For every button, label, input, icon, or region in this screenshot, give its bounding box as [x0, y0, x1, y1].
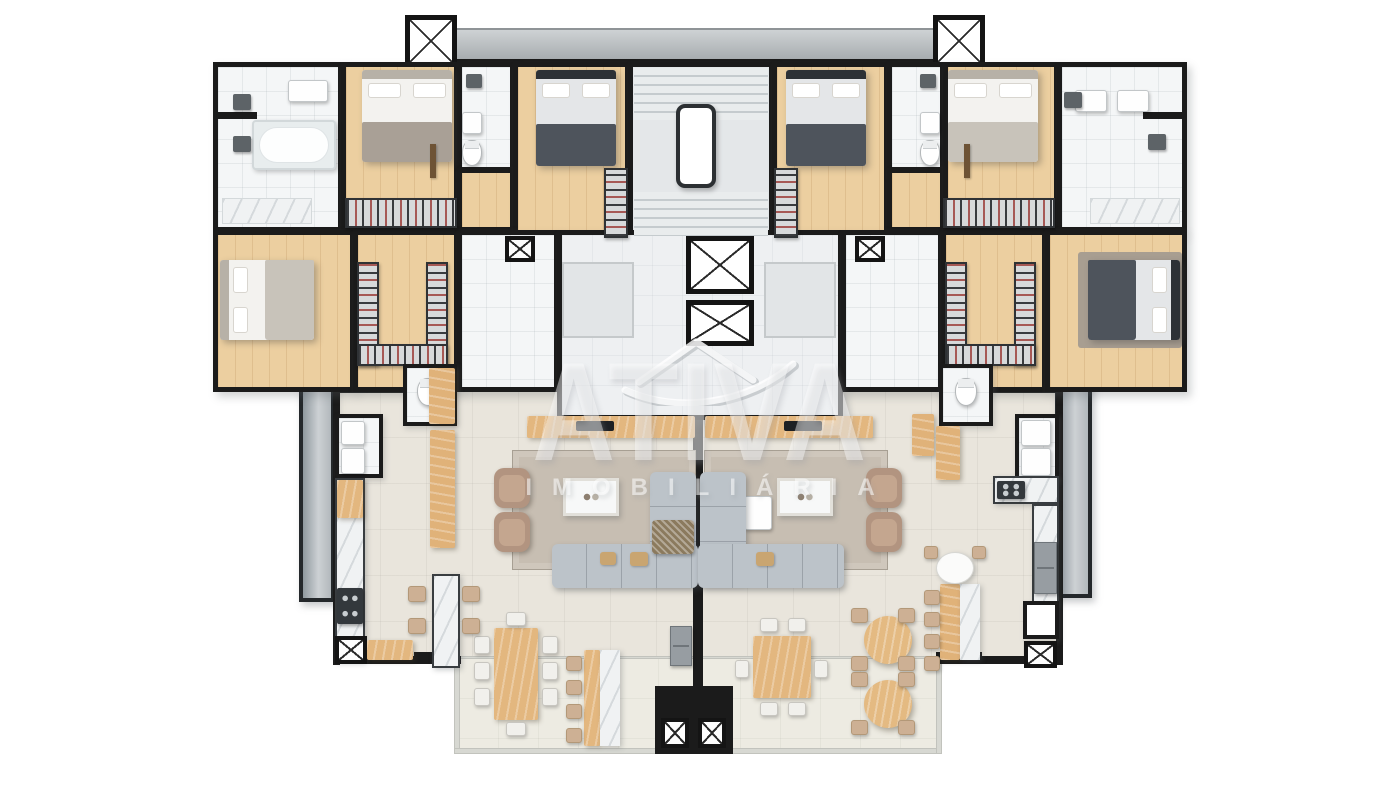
armchair: [866, 512, 902, 552]
wardrobe-rack: [774, 168, 798, 238]
chair: [851, 720, 868, 735]
shaft-top-right: [933, 15, 985, 67]
wardrobe-rack: [345, 198, 457, 228]
chair: [898, 720, 915, 735]
sink: [920, 112, 940, 134]
headboard: [786, 70, 866, 79]
vestibule-left: [562, 262, 634, 338]
island-chair: [408, 618, 426, 634]
pillow: [999, 83, 1031, 98]
tall-cabinet: [912, 414, 934, 456]
floor-plan: [0, 0, 1400, 787]
terrace-wall-left: [454, 656, 460, 754]
shaft-bottom-1: [661, 718, 689, 748]
mirror-cabinet: [920, 74, 936, 88]
cooktop: [997, 481, 1025, 499]
floor-plan-canvas: ATIVA IMOBILIÁRIA: [0, 0, 1400, 787]
chair: [851, 608, 868, 623]
headboard: [220, 260, 229, 340]
elevator-1: [686, 236, 754, 294]
dining-chair: [788, 702, 806, 716]
sofa: [698, 544, 844, 588]
pillow: [582, 83, 611, 98]
wardrobe-rack: [604, 168, 628, 238]
pillow: [792, 83, 821, 98]
sink: [288, 80, 328, 102]
dining-chair: [474, 662, 490, 680]
headboard: [362, 70, 452, 79]
towel-niche: [1064, 92, 1082, 108]
tv: [784, 421, 822, 431]
toilet: [920, 140, 940, 166]
pillow: [1152, 267, 1167, 293]
laundry-sink: [341, 421, 365, 445]
marble-bench: [1090, 198, 1180, 224]
pantry-cabinet: [936, 426, 960, 480]
towel-niche: [233, 136, 251, 152]
pillow: [832, 83, 861, 98]
round-white-table: [936, 552, 974, 584]
bed-double: [220, 260, 314, 340]
wall-stub: [215, 112, 257, 119]
shaft-hall-right: [855, 236, 885, 262]
bed-double: [362, 70, 452, 162]
chair: [851, 672, 868, 687]
shaft-top-left: [405, 15, 457, 67]
pantry-cabinet: [430, 430, 455, 548]
dining-chair: [506, 612, 526, 626]
throw-pillow: [756, 552, 774, 566]
dining-chair: [542, 662, 558, 680]
counter-extension: [367, 640, 413, 660]
closet-rack: [945, 344, 1036, 366]
dining-chair: [760, 618, 778, 632]
island-top: [960, 584, 980, 660]
cooktop: [337, 588, 363, 624]
dining-chair: [760, 702, 778, 716]
pillow: [233, 267, 248, 293]
core-top-wall-band: [455, 28, 935, 64]
shaft-kitchen-left: [335, 636, 367, 664]
kitchen-island: [432, 574, 460, 668]
bathtub: [252, 120, 336, 170]
mirror-cabinet: [466, 74, 482, 88]
dining-table: [753, 636, 811, 698]
bed-double: [536, 70, 616, 166]
side-table: [744, 496, 772, 530]
headboard: [536, 70, 616, 79]
duct-closet: [1023, 601, 1059, 639]
pillow: [233, 307, 248, 333]
chair: [851, 656, 868, 671]
marble-bench: [222, 198, 312, 224]
bar-counter: [584, 650, 600, 746]
bed-double: [948, 70, 1038, 162]
stair-flight-lower: [634, 192, 768, 236]
towel-niche: [233, 94, 251, 110]
island-chair: [462, 586, 480, 602]
throw-pillow: [600, 552, 616, 565]
washer: [341, 448, 365, 474]
sink: [1117, 90, 1149, 112]
wardrobe-rack: [943, 198, 1055, 228]
bar-stool: [566, 704, 582, 719]
blanket: [786, 124, 866, 166]
bar-stool: [566, 656, 582, 671]
bar-top: [600, 650, 620, 746]
shaft-bottom-2: [698, 718, 726, 748]
coffee-table: [563, 478, 619, 516]
chair: [898, 672, 915, 687]
pillow: [542, 83, 571, 98]
stair-well: [676, 104, 716, 188]
shaft-kitchen-right: [1024, 641, 1057, 668]
dining-chair: [814, 660, 828, 678]
pillow: [1152, 307, 1167, 333]
blanket: [362, 122, 452, 162]
blanket: [265, 260, 314, 340]
laundry-sink: [1021, 420, 1051, 446]
dining-table: [494, 628, 538, 720]
door-leaf: [964, 144, 970, 178]
island-counter: [940, 584, 960, 660]
service-balcony-left: [299, 374, 335, 602]
chair: [972, 546, 986, 559]
armchair: [494, 512, 530, 552]
vestibule-right: [764, 262, 836, 338]
dining-chair: [474, 688, 490, 706]
throw-blanket: [652, 520, 694, 554]
armchair: [866, 468, 902, 508]
blanket: [948, 122, 1038, 162]
oven-dishwasher: [1034, 542, 1057, 594]
island-stool: [924, 656, 940, 671]
closet-rack: [357, 344, 448, 366]
chair: [898, 608, 915, 623]
tv: [576, 421, 614, 431]
coffee-table: [777, 478, 833, 516]
toilet: [955, 378, 977, 406]
chair: [924, 546, 938, 559]
armchair: [494, 468, 530, 508]
dining-chair: [474, 636, 490, 654]
kitchen-cabinet: [337, 480, 363, 518]
hall-suite-right: [887, 168, 945, 232]
island-stool: [924, 634, 940, 649]
island-stool: [924, 590, 940, 605]
dining-chair: [506, 722, 526, 736]
wall-stub: [1143, 112, 1185, 119]
pillow: [954, 83, 986, 98]
hall-suite-left: [457, 168, 515, 232]
dining-chair: [542, 688, 558, 706]
towel-niche: [1148, 134, 1166, 150]
elevator-2: [686, 300, 754, 346]
door-leaf: [430, 144, 436, 178]
bed-double: [786, 70, 866, 166]
island-chair: [408, 586, 426, 602]
blanket: [1088, 260, 1136, 340]
pillow: [368, 83, 400, 98]
bed-double: [1088, 260, 1180, 340]
washer: [1021, 448, 1051, 476]
pillow: [413, 83, 445, 98]
throw-pillow: [630, 552, 648, 566]
dining-chair: [735, 660, 749, 678]
island-stool: [924, 612, 940, 627]
dining-chair: [542, 636, 558, 654]
bar-stool: [566, 728, 582, 743]
island-chair: [462, 618, 480, 634]
dining-chair: [788, 618, 806, 632]
fridge: [670, 626, 692, 666]
bar-stool: [566, 680, 582, 695]
chair: [898, 656, 915, 671]
headboard: [1171, 260, 1180, 340]
headboard: [948, 70, 1038, 79]
blanket: [536, 124, 616, 166]
toilet: [462, 140, 482, 166]
shaft-hall-left: [505, 236, 535, 262]
sink: [462, 112, 482, 134]
tall-cabinet: [429, 368, 455, 424]
